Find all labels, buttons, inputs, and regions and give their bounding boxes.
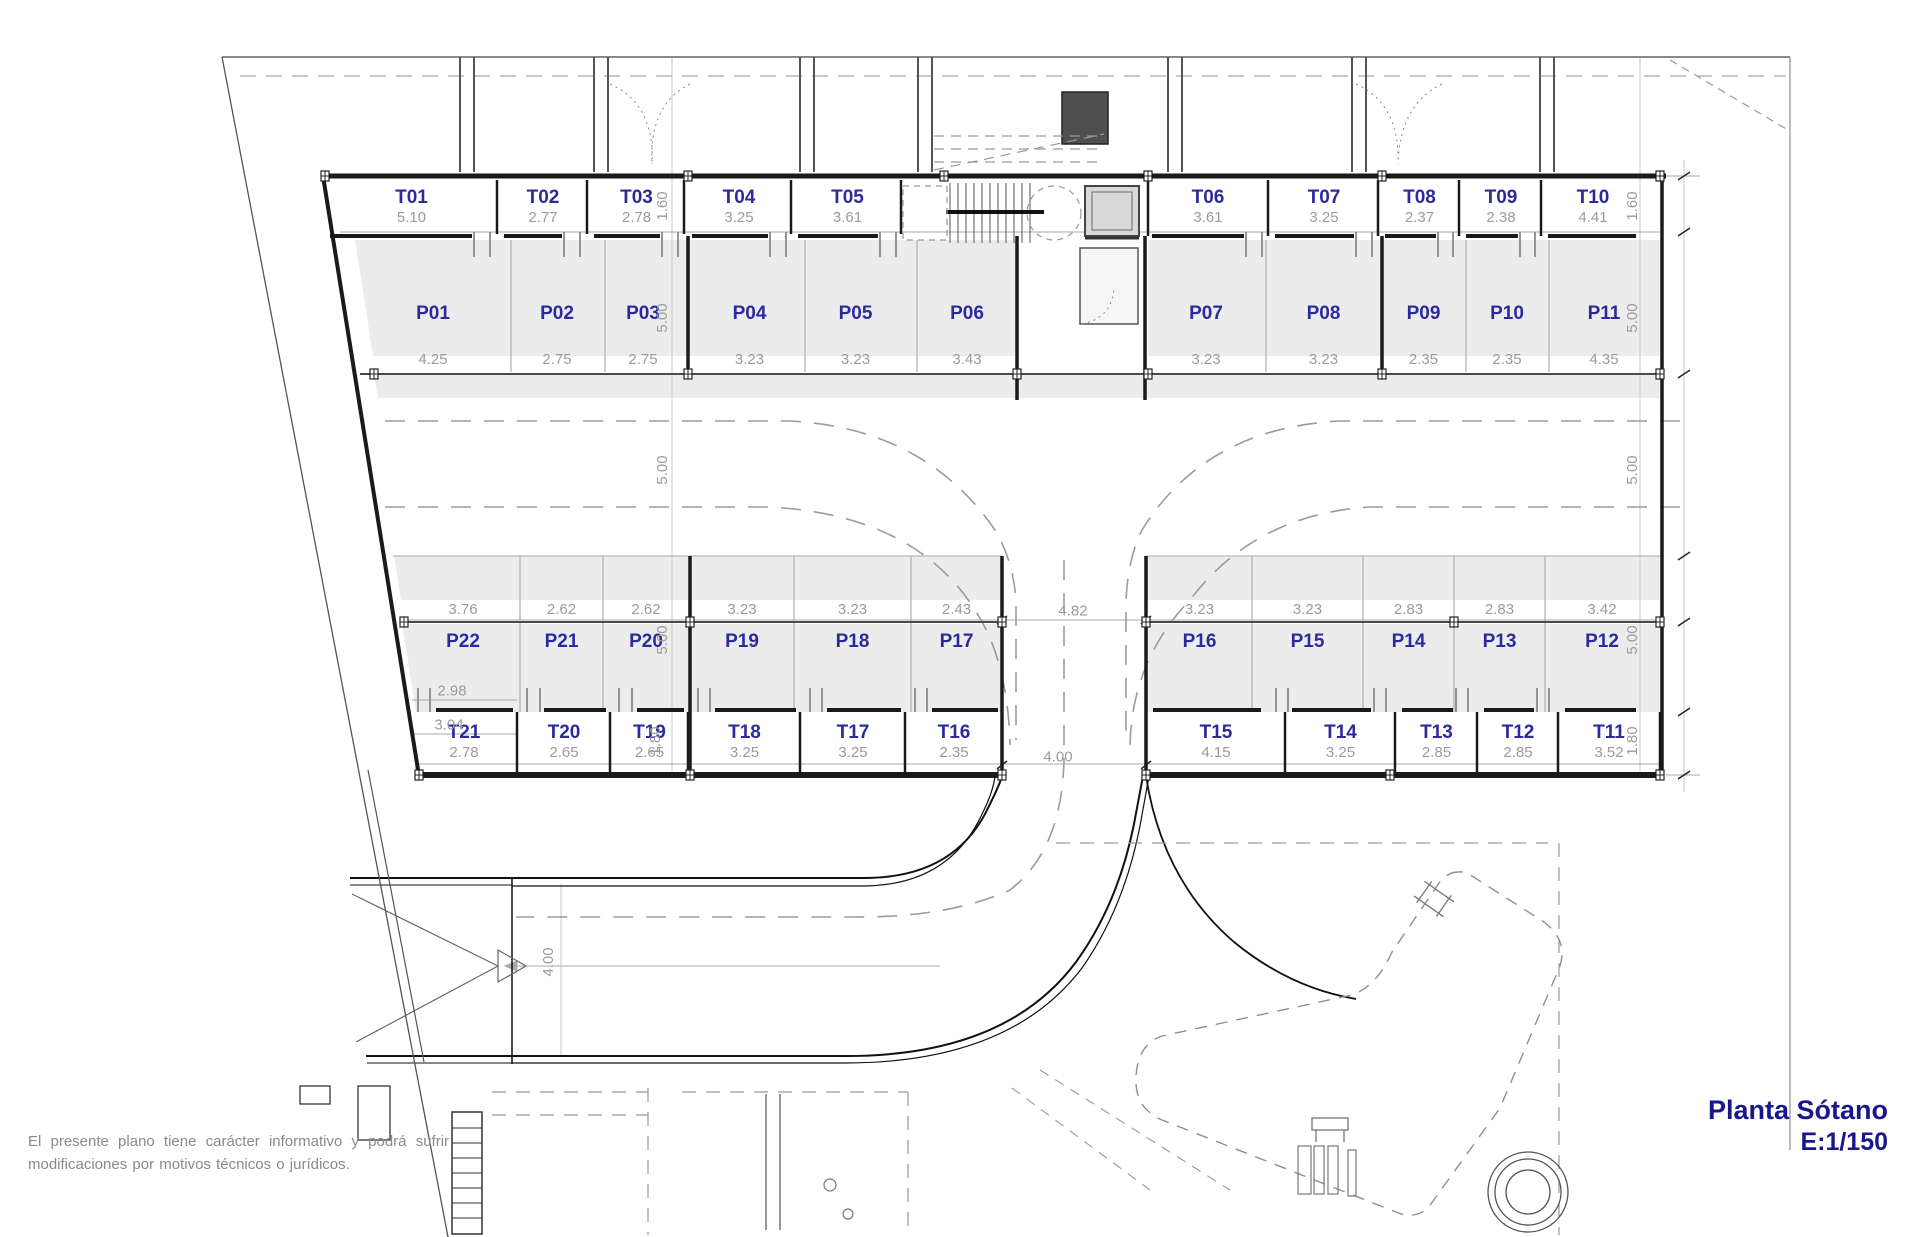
road-edges bbox=[350, 776, 1356, 1064]
vertical-dim: 1.80 bbox=[647, 706, 663, 776]
vertical-dim: 4.00 bbox=[540, 927, 556, 997]
vertical-dim: 5.00 bbox=[1624, 283, 1640, 353]
corner-dim: 2.98 bbox=[437, 683, 466, 700]
disclaimer-line1: El presente plano tiene carácter informa… bbox=[28, 1131, 480, 1154]
vertical-dim: 1.60 bbox=[1624, 171, 1640, 241]
plan-scale: E:1/150 bbox=[1688, 1126, 1888, 1159]
exit-dim: 4.00 bbox=[1043, 749, 1072, 766]
vertical-dim: 5.00 bbox=[1624, 605, 1640, 675]
pool-area bbox=[1012, 843, 1568, 1235]
vertical-dim: 5.00 bbox=[1624, 435, 1640, 505]
disclaimer-line2: modificaciones por motivos técnicos o ju… bbox=[28, 1154, 480, 1177]
spa-circle-icon bbox=[1488, 1152, 1568, 1232]
vertical-dim: 5.00 bbox=[654, 283, 670, 353]
vertical-dim: 5.00 bbox=[654, 435, 670, 505]
elevator-shaft bbox=[1085, 186, 1139, 236]
pool-ladder-icon bbox=[1412, 878, 1456, 920]
stall-fills bbox=[355, 240, 1660, 712]
bench-icon bbox=[1312, 1118, 1348, 1142]
plan-title: Planta Sótano bbox=[1688, 1094, 1888, 1126]
title-block: Planta Sótano E:1/150 bbox=[1688, 1094, 1888, 1159]
vertical-dim: 1.60 bbox=[654, 171, 670, 241]
corner-dim: 3.04 bbox=[434, 717, 463, 734]
pool-steps-icon bbox=[1298, 1146, 1356, 1196]
vertical-dim: 1.80 bbox=[1624, 706, 1640, 776]
elevator-lobby bbox=[1080, 248, 1138, 324]
floor-plan-page: T015.10 T022.77 T032.78 T043.25 T053.61 … bbox=[0, 0, 1920, 1237]
upper-band bbox=[240, 57, 1786, 172]
ramp-arrow bbox=[352, 894, 526, 1042]
gap-dim: 4.82 bbox=[1058, 603, 1087, 620]
vertical-dim: 5.00 bbox=[654, 605, 670, 675]
disclaimer-note: El presente plano tiene carácter informa… bbox=[28, 1131, 480, 1176]
